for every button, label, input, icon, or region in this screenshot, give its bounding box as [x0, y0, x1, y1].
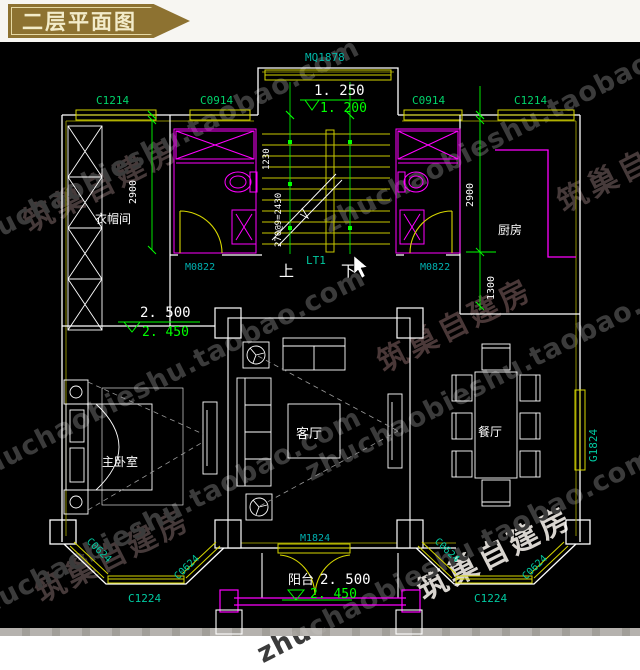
toilet-left: [225, 172, 251, 192]
window-code-mq1878: MQ1878: [305, 51, 345, 64]
stair-handrail: [326, 130, 334, 252]
door-code-m1824: M1824: [300, 533, 330, 544]
nightstand-bottom: [64, 490, 88, 514]
room-label-living: 客厅: [296, 426, 322, 442]
bedroom-rug: [102, 388, 183, 505]
level-1200: 1. 200: [320, 101, 367, 116]
door-code-m0822-left: M0822: [185, 262, 215, 273]
cloakroom: 衣帽间 2900: [68, 116, 156, 330]
window-code-c0914-tl: C0914: [200, 94, 233, 107]
floorplan-canvas[interactable]: 筑巢自建房 筑巢自建房 筑巢自建房 筑巢自建房 筑巢自建房 zhuchaobie…: [0, 42, 640, 636]
stair-up-label: 上: [279, 262, 294, 280]
staircase: 270@9=2430 1230 1. 250 1. 200 LT1 上 下: [262, 82, 390, 280]
level-mark-mid: 2. 500 2. 450: [118, 305, 200, 340]
living-room: 客厅: [228, 318, 410, 548]
dim-1230: 1230: [262, 148, 272, 170]
stair-note: 270@9=2430: [274, 193, 284, 247]
toilet-right: [404, 172, 428, 192]
level-2450-bal: 2. 450: [310, 587, 357, 602]
stair-dim-dots: [288, 140, 352, 230]
window-code-g1824: G1824: [587, 429, 600, 462]
window-code-c0624-r1: C0624: [432, 536, 461, 565]
level-2500-mid: 2. 500: [140, 305, 191, 321]
bedroom-tv: [203, 402, 217, 474]
title-banner: 二层平面图: [8, 4, 190, 38]
bathroom-right-door: [410, 211, 452, 253]
kitchen-counter: [495, 150, 576, 257]
bathroom-left: [174, 129, 257, 253]
nightstand-top: [64, 380, 88, 404]
window-code-c1214-tr: C1214: [514, 94, 547, 107]
dining-room: 餐厅: [452, 344, 540, 506]
door-code-m0822-right: M0822: [420, 262, 450, 273]
window-code-c1224-r: C1224: [474, 592, 507, 605]
dim-2900-left: 2900: [128, 116, 156, 254]
bathroom-left-door: [180, 211, 222, 253]
bed-headboard: [66, 404, 88, 490]
stair-code-lt1: LT1: [306, 254, 326, 267]
floorplan-drawing: MQ1878 C1214 C0914 C0914 C1214 G1824: [0, 42, 640, 636]
room-label-kitchen: 厨房: [498, 222, 522, 237]
bed: [88, 404, 152, 490]
page-title: 二层平面图: [12, 6, 137, 36]
room-label-cloakroom: 衣帽间: [95, 211, 131, 226]
room-label-dining: 餐厅: [478, 424, 502, 439]
window-g1824: G1824: [575, 390, 600, 470]
dim-1300-text: 1300: [486, 276, 497, 300]
room-label-balcony: 阳台: [288, 573, 314, 588]
room-label-master: 主卧室: [102, 454, 138, 469]
window-code-c1214-tl: C1214: [96, 94, 129, 107]
window-code-c0624-l1: C0624: [84, 536, 113, 565]
level-1250: 1. 250: [314, 83, 365, 99]
bathroom-right: [396, 129, 460, 253]
window-code-c1224-l: C1224: [128, 592, 161, 605]
balcony-footings: [216, 610, 422, 634]
title-banner-border: 二层平面图: [11, 7, 187, 35]
living-tv: [388, 394, 402, 468]
page-header: 二层平面图: [0, 0, 640, 42]
master-bedroom: 主卧室: [64, 380, 217, 514]
interior-walls: [62, 115, 580, 326]
level-2500-bal: 2. 500: [320, 572, 371, 588]
dim-2900-right-text: 2900: [465, 183, 476, 207]
dim-2900-left-text: 2900: [128, 180, 139, 204]
window-code-c0914-tr: C0914: [412, 94, 445, 107]
level-2450-mid: 2. 450: [142, 325, 189, 340]
